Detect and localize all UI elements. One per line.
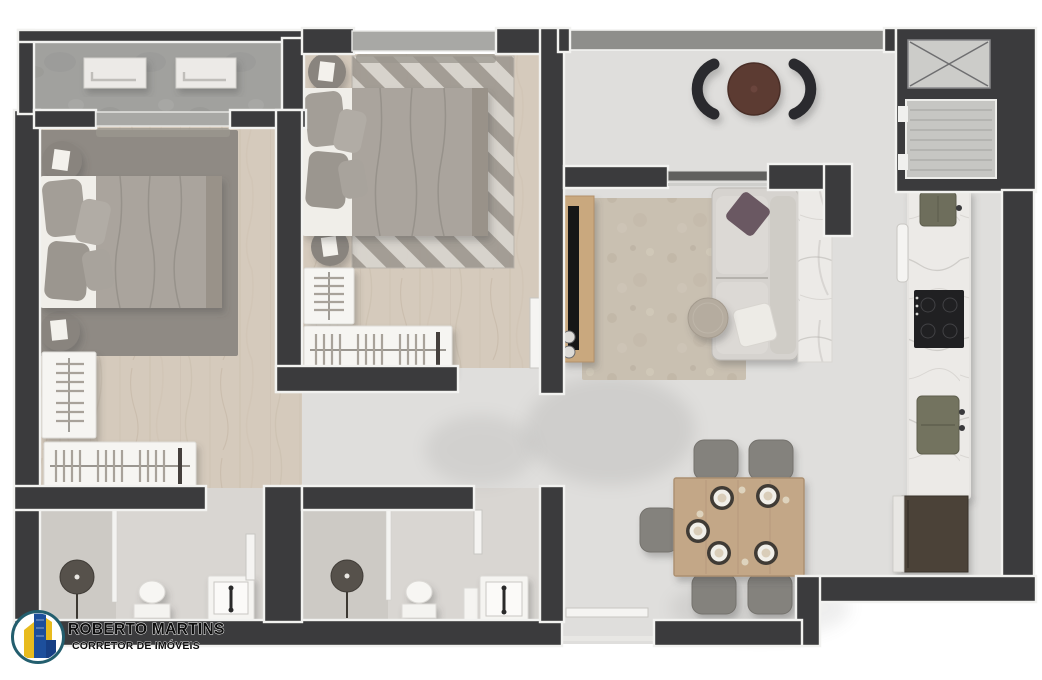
bathroom-door-leaf [474, 510, 482, 554]
living-room [562, 186, 832, 380]
bath-cabinet [464, 588, 478, 620]
wardrobe-rack [44, 442, 196, 490]
ac-unit [176, 58, 236, 88]
pillow [44, 240, 91, 301]
wall-bed2-bottom [276, 366, 458, 392]
cabinet-door [897, 224, 908, 282]
faucet [959, 409, 965, 415]
wall-bottom-right [818, 576, 1036, 602]
wall-living-stub [824, 164, 852, 236]
balcony-bedroom-floor [34, 42, 282, 112]
dining-chair [692, 574, 736, 614]
dining-table [674, 478, 804, 576]
double-bed [302, 88, 488, 236]
wall-bed2-top-left [302, 28, 354, 54]
nightstand [40, 311, 80, 351]
wall-bed1-bottom [14, 486, 206, 510]
floor-plan-page: ROBERTO MARTINS CORRETOR DE IMÓVEIS [0, 0, 1042, 680]
tv-console [562, 196, 594, 362]
nightstand [42, 141, 82, 181]
dining-chair [694, 440, 738, 480]
wall-bottom-mid [654, 620, 802, 646]
curtain [96, 128, 230, 137]
wall-balcony-right [282, 38, 304, 112]
logo-building-blue [34, 610, 46, 658]
wall-right-main [1002, 190, 1034, 602]
place-setting [710, 486, 734, 510]
cooktop [914, 290, 964, 348]
bedroom-2-window [352, 31, 498, 51]
entry-door-leaf [566, 608, 648, 617]
place-setting [756, 484, 780, 508]
balcony-sliding-door [668, 171, 770, 181]
wall-left-main [14, 110, 40, 646]
wall-balcony-top [18, 30, 306, 42]
dining-chair [748, 574, 792, 614]
elevator-shaft [898, 100, 996, 178]
bathroom-ensuite-door-floor [206, 488, 264, 510]
wardrobe-rack [42, 352, 96, 438]
shower-partition [112, 510, 117, 602]
entry-threshold [562, 636, 654, 641]
washbasin [480, 576, 528, 622]
wall-living-top-a [564, 166, 668, 188]
wall-bath2-top [302, 486, 474, 510]
wall-bed2-top-right [496, 28, 544, 54]
wall-balcony-divider-left [34, 110, 96, 128]
brand-tagline: CORRETOR DE IMÓVEIS [72, 639, 200, 652]
floor-plan-svg: ROBERTO MARTINS CORRETOR DE IMÓVEIS [0, 0, 1042, 680]
curtain [356, 54, 496, 63]
wall-parapet-post [558, 28, 570, 52]
bathroom-social-door-floor [474, 488, 540, 510]
wall-bath-divider [264, 486, 302, 622]
washbasin [208, 576, 254, 620]
balcony-window [96, 112, 230, 126]
shafts [898, 40, 996, 178]
wall-bath2-right [540, 486, 564, 622]
kitchen-sink-2 [917, 396, 965, 454]
sofa [712, 188, 798, 360]
duct-shaft [908, 40, 990, 88]
place-setting [707, 541, 731, 565]
wall-bed-divider [276, 110, 302, 392]
bedroom-2-doorway-floor [458, 368, 540, 394]
dining-chair [749, 440, 793, 480]
nightstand [308, 53, 346, 91]
place-setting [686, 519, 710, 543]
brand-name: ROBERTO MARTINS [68, 621, 225, 638]
bathroom-door-leaf [246, 534, 255, 580]
wall-parapet-living [560, 30, 896, 50]
bedroom-2-door-leaf [530, 298, 540, 368]
dining-chair [640, 508, 678, 552]
wall-parapet-post [884, 28, 896, 52]
wall-bed2-right [540, 28, 564, 394]
coffee-table [688, 298, 728, 338]
tv [568, 206, 579, 350]
ac-unit [84, 58, 146, 88]
faucet [956, 205, 962, 211]
wardrobe-rack [304, 268, 354, 324]
place-setting [754, 541, 778, 565]
double-bed [40, 176, 222, 308]
refrigerator [893, 496, 968, 572]
shower-partition [386, 510, 391, 600]
